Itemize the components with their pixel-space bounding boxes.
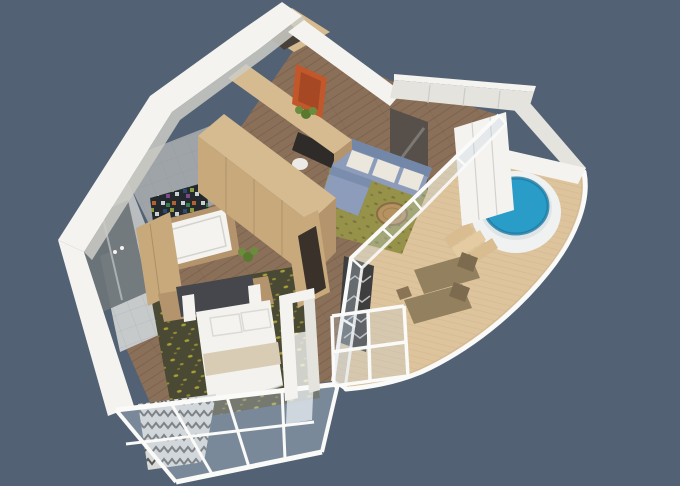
plant-leaf bbox=[309, 107, 317, 115]
plant-leaf bbox=[250, 247, 258, 255]
pillow bbox=[210, 314, 242, 336]
shower-handle bbox=[113, 250, 117, 254]
bedside-lamp bbox=[182, 294, 196, 322]
floorplan-render bbox=[0, 0, 680, 486]
shower-handle bbox=[120, 246, 124, 250]
deck-balustrade bbox=[332, 306, 408, 386]
pillow bbox=[241, 309, 271, 331]
